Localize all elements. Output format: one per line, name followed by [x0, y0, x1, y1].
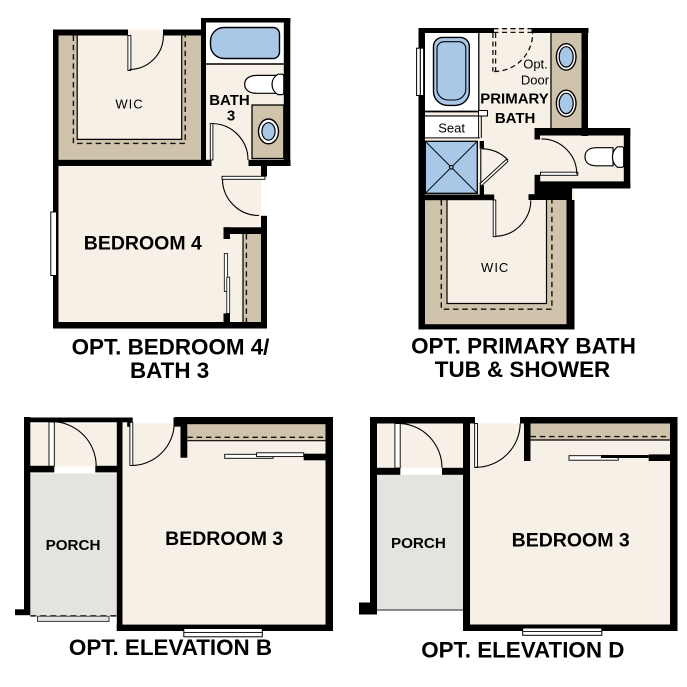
svg-text:OPT. ELEVATION D: OPT. ELEVATION D — [421, 638, 624, 663]
svg-text:Opt.: Opt. — [523, 57, 548, 72]
svg-text:OPT. BEDROOM 4/: OPT. BEDROOM 4/ — [72, 335, 270, 360]
svg-text:BATH: BATH — [209, 92, 250, 109]
svg-text:TUB & SHOWER: TUB & SHOWER — [435, 357, 610, 382]
svg-text:WIC: WIC — [481, 260, 509, 275]
svg-text:WIC: WIC — [115, 97, 143, 112]
svg-text:Door: Door — [521, 73, 550, 88]
svg-text:BEDROOM 3: BEDROOM 3 — [512, 530, 630, 552]
svg-text:BATH: BATH — [495, 110, 536, 127]
svg-text:PORCH: PORCH — [46, 537, 101, 554]
svg-text:3: 3 — [227, 108, 235, 125]
svg-text:PRIMARY: PRIMARY — [480, 91, 549, 108]
svg-text:BATH 3: BATH 3 — [130, 358, 209, 383]
svg-text:OPT. ELEVATION B: OPT. ELEVATION B — [69, 635, 272, 660]
svg-text:OPT. PRIMARY BATH: OPT. PRIMARY BATH — [411, 334, 636, 359]
svg-text:PORCH: PORCH — [391, 535, 446, 552]
svg-text:BEDROOM 3: BEDROOM 3 — [165, 528, 283, 550]
svg-text:BEDROOM 4: BEDROOM 4 — [84, 233, 202, 255]
svg-text:Seat: Seat — [438, 120, 465, 135]
